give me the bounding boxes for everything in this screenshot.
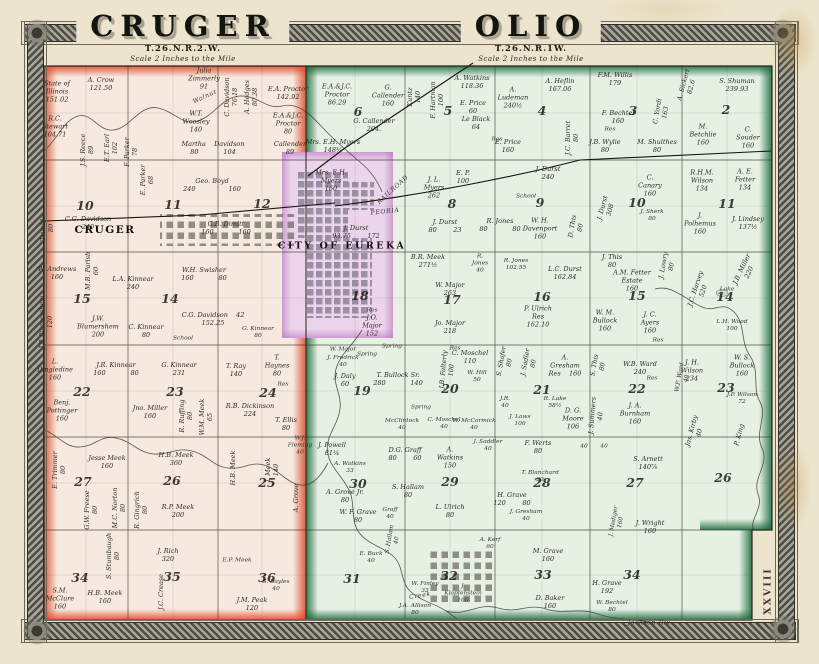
decorative-border-right bbox=[778, 24, 795, 640]
border-corner-ornament-bl bbox=[20, 614, 54, 648]
township-range-olio: T.26.N.R.1W. bbox=[461, 44, 601, 54]
city-of-eureka-area bbox=[282, 152, 393, 338]
township-cruger-area bbox=[44, 66, 306, 620]
border-corner-ornament-tr bbox=[766, 16, 800, 50]
plate-number: XXVIII bbox=[763, 567, 773, 614]
border-corner-ornament-br bbox=[766, 612, 800, 646]
lake-shape bbox=[716, 290, 728, 297]
township-olio-area bbox=[306, 66, 772, 620]
scale-note-olio: Scale 2 Inches to the Mile bbox=[461, 55, 601, 63]
atlas-page: CRUGER T.26.N.R.2.W. Scale 2 Inches to t… bbox=[0, 0, 819, 664]
title-block-olio: OLIO T.26.N.R.1W. Scale 2 Inches to the … bbox=[461, 9, 601, 63]
scale-note-cruger: Scale 2 Inches to the Mile bbox=[76, 55, 289, 63]
township-range-cruger: T.26.N.R.2.W. bbox=[76, 44, 289, 54]
decorative-border-bottom bbox=[24, 622, 796, 640]
village-blocks-hatch bbox=[160, 214, 298, 246]
hamlet-blocks-hatch bbox=[427, 550, 495, 605]
map-canvas bbox=[0, 0, 819, 664]
township-title-cruger: CRUGER bbox=[76, 9, 289, 43]
township-title-olio: OLIO bbox=[461, 9, 601, 43]
title-block-cruger: CRUGER T.26.N.R.2.W. Scale 2 Inches to t… bbox=[76, 9, 289, 63]
border-corner-ornament-tl bbox=[20, 16, 54, 50]
decorative-border-left bbox=[27, 24, 44, 640]
